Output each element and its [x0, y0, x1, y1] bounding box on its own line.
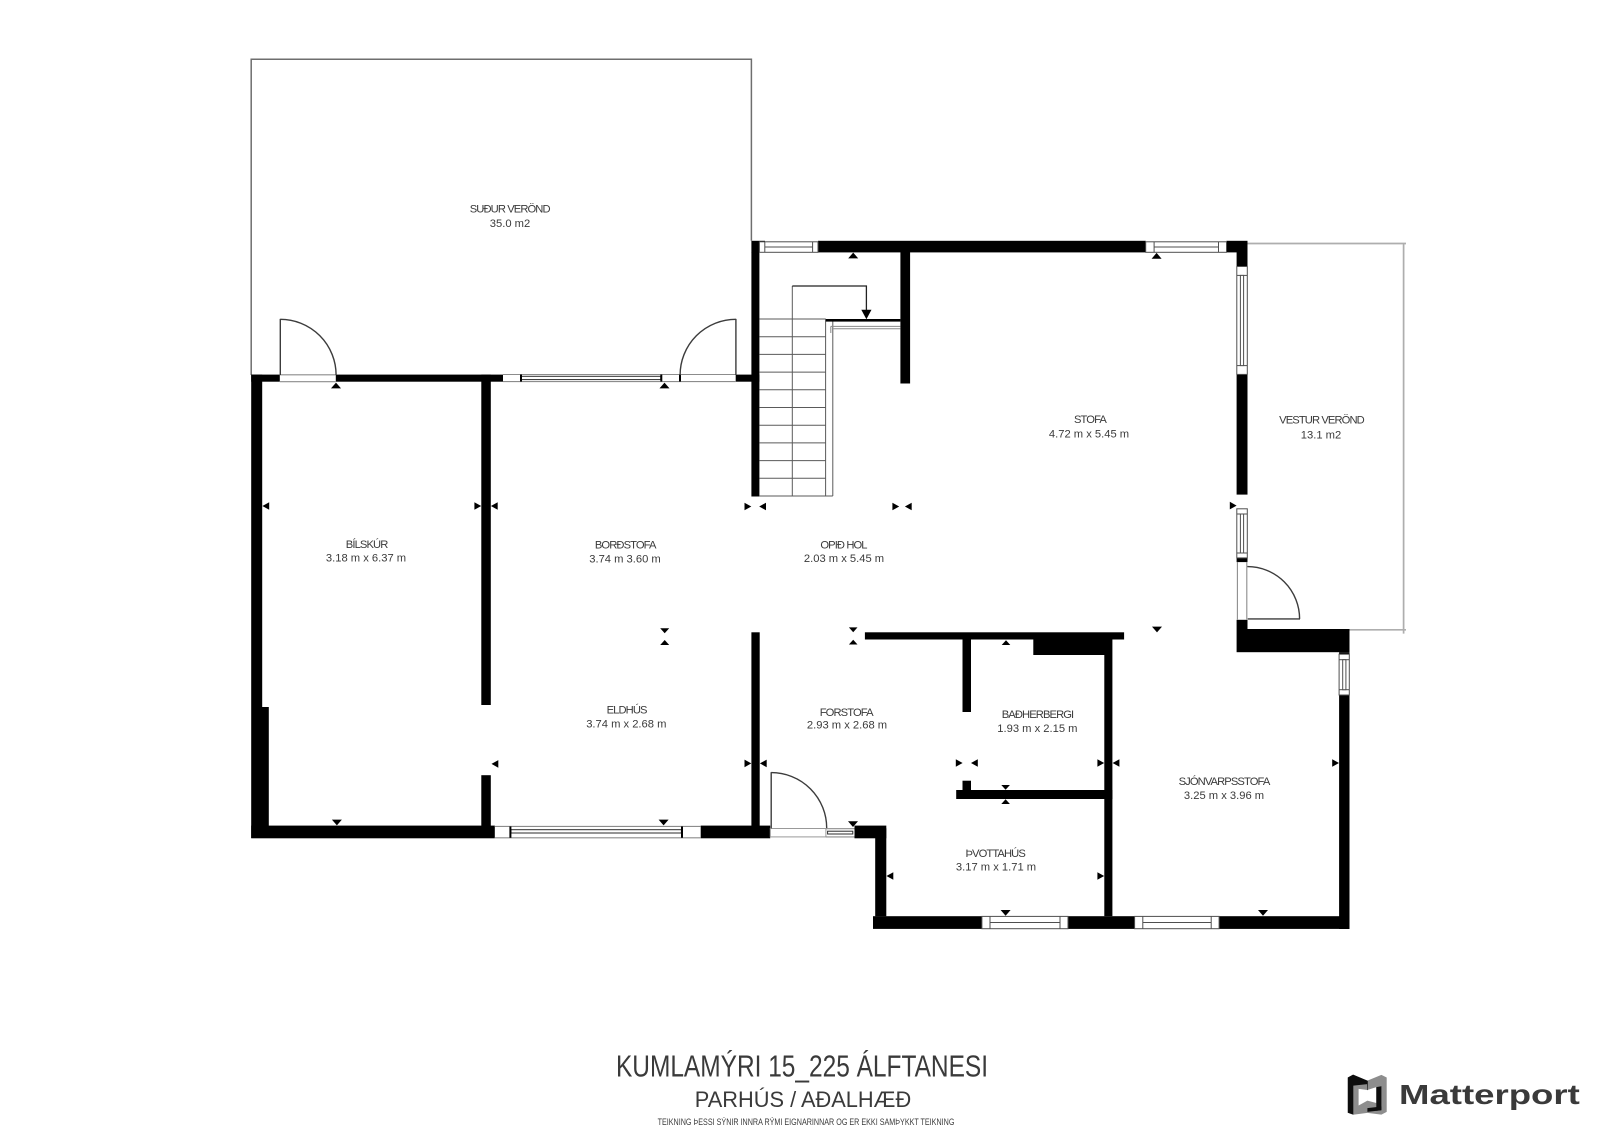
svg-text:STOFA: STOFA: [1074, 414, 1107, 426]
svg-text:OPIÐ HOL: OPIÐ HOL: [820, 540, 867, 552]
svg-text:PARHÚS / AÐALHÆÐ: PARHÚS / AÐALHÆÐ: [695, 1087, 911, 1112]
svg-text:FORSTOFA: FORSTOFA: [820, 707, 874, 719]
svg-text:SJÓNVARPSSTOFA: SJÓNVARPSSTOFA: [1179, 775, 1271, 788]
svg-text:3.74 m x 2.68 m: 3.74 m x 2.68 m: [586, 719, 666, 731]
svg-text:35.0 m2: 35.0 m2: [490, 218, 530, 230]
svg-text:Matterport: Matterport: [1399, 1079, 1580, 1110]
svg-text:3.17 m x 1.71 m: 3.17 m x 1.71 m: [956, 861, 1036, 873]
svg-text:SUÐUR VERÖND: SUÐUR VERÖND: [470, 204, 551, 216]
svg-text:4.72 m x 5.45 m: 4.72 m x 5.45 m: [1049, 429, 1129, 441]
svg-text:BAÐHERBERGI: BAÐHERBERGI: [1002, 709, 1074, 721]
svg-text:ELDHÚS: ELDHÚS: [607, 704, 647, 717]
svg-text:2.93 m x 2.68 m: 2.93 m x 2.68 m: [807, 720, 887, 732]
svg-text:3.18 m x 6.37 m: 3.18 m x 6.37 m: [326, 553, 406, 565]
svg-text:2.03 m x 5.45 m: 2.03 m x 5.45 m: [804, 553, 884, 565]
svg-text:BORÐSTOFA: BORÐSTOFA: [595, 540, 657, 552]
svg-text:TEIKNING ÞESSI SÝNIR INNRA RÝM: TEIKNING ÞESSI SÝNIR INNRA RÝMI EIGNARIN…: [658, 1116, 955, 1127]
svg-text:KUMLAMÝRI 15_225 ÁLFTANESI: KUMLAMÝRI 15_225 ÁLFTANESI: [616, 1049, 988, 1083]
svg-text:BÍLSKÚR: BÍLSKÚR: [346, 538, 388, 551]
svg-text:ÞVOTTAHÚS: ÞVOTTAHÚS: [965, 847, 1025, 860]
svg-text:3.74 m 3.60 m: 3.74 m 3.60 m: [589, 554, 661, 566]
svg-text:1.93 m x 2.15 m: 1.93 m x 2.15 m: [997, 723, 1077, 735]
svg-text:VESTUR VERÖND: VESTUR VERÖND: [1279, 415, 1364, 427]
svg-text:3.25 m x 3.96 m: 3.25 m x 3.96 m: [1184, 790, 1264, 802]
svg-text:13.1 m2: 13.1 m2: [1301, 429, 1341, 441]
